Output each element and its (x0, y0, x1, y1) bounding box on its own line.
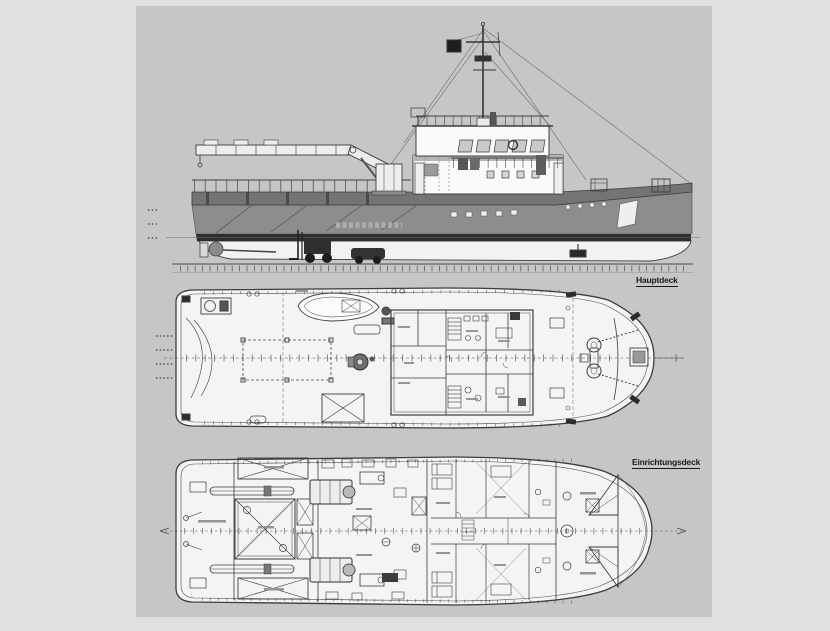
draft-marks (148, 210, 159, 238)
anchor (570, 250, 586, 257)
main-deck-label: Hauptdeck (636, 276, 678, 287)
lower-deck-plan-view (146, 452, 702, 617)
utility-vehicle (351, 248, 385, 264)
scanned-drawing-panel: Hauptdeck Einrichtungsdeck (136, 6, 712, 617)
lower-deck-label: Einrichtungsdeck (632, 458, 700, 469)
main-deck-plan-view (146, 278, 702, 450)
signal-flag (447, 40, 461, 52)
mast-assembly (447, 22, 500, 126)
bow-hull-marking (617, 200, 638, 228)
baseline-frame-scale (172, 264, 693, 273)
side-elevation-view (146, 12, 702, 277)
deck-crane (196, 140, 406, 195)
stern-draft-tick-rows (156, 336, 173, 378)
radar-scanner (475, 56, 491, 61)
engine-casing-grid (536, 155, 546, 175)
wheelhouse-windows (458, 140, 545, 152)
exhaust-pipe (490, 112, 496, 126)
underwater-hull (197, 241, 691, 261)
hull-side-profile (166, 183, 700, 261)
vent-grid (458, 158, 468, 170)
screenshot-page: Hauptdeck Einrichtungsdeck (0, 0, 830, 631)
deckhouse-door (554, 163, 563, 194)
